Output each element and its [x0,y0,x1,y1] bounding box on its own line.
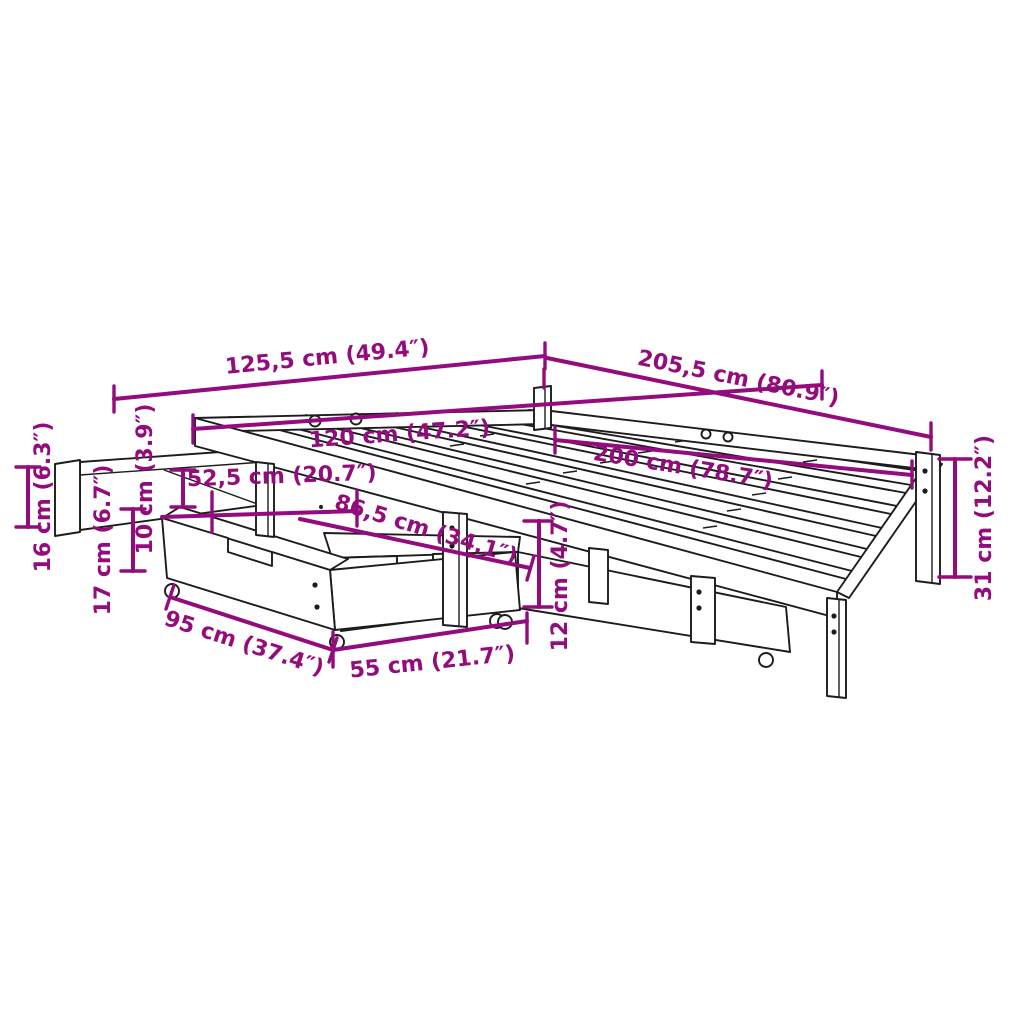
dim-height-16-label: 16 cm (6.3″) [31,422,56,573]
dim-height-17-label: 17 cm (6.7″) [91,465,116,616]
foot-near-leg [827,598,846,698]
panel-end-cap [55,460,80,536]
bolt-icon [724,433,733,442]
dim-drawer-depth-label: 55 cm (21.7″) [348,641,516,683]
dim-outer-width-label: 125,5 cm (49.4″) [224,335,431,380]
screw-icon [831,629,836,634]
screw-icon [696,589,701,594]
dim-outer-width: 125,5 cm (49.4″) [114,335,545,412]
dim-height-10-label: 10 cm (3.9″) [133,404,158,555]
screw-icon [312,582,317,587]
dimension-diagram-canvas: 125,5 cm (49.4″) 205,5 cm (80.9″) 120 cm… [0,0,1024,1024]
screw-icon [831,613,836,618]
caster-wheel-icon [759,653,773,667]
dim-outer-length-label: 205,5 cm (80.9″) [635,346,841,411]
mid-leg-1 [589,548,608,604]
bed-frame-dimension-diagram: 125,5 cm (49.4″) 205,5 cm (80.9″) 120 cm… [0,0,1024,1024]
screw-icon [922,488,927,493]
dim-drawer-height-label: 12 cm (4.7″) [548,501,573,652]
mid-leg-2 [691,576,715,644]
screw-icon [696,605,701,610]
dim-leg-height-label: 31 cm (12.2″) [972,435,997,601]
screw-icon [319,505,323,509]
screw-icon [922,468,927,473]
head-far-post-cap [534,386,551,430]
screw-icon [314,604,319,609]
dim-height-16: 16 cm (6.3″) [16,422,56,573]
foot-far-leg [916,452,940,584]
dim-leg-height: 31 cm (12.2″) [939,435,997,601]
bolt-icon [702,430,711,439]
